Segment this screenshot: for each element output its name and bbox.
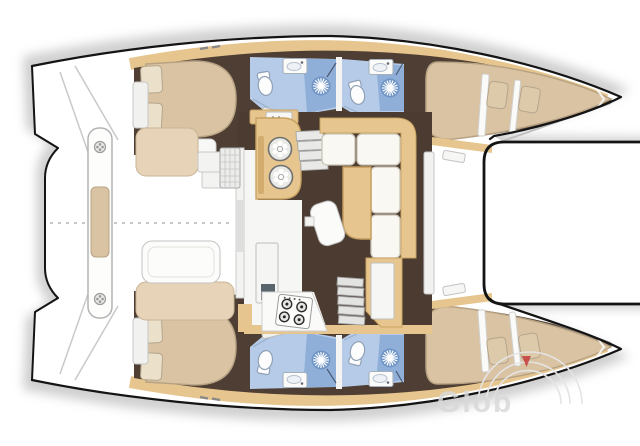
winch-icon xyxy=(95,294,106,305)
sofa-cushion xyxy=(371,167,400,213)
cockpit-seat-starboard xyxy=(136,282,234,320)
saloon-fwd-wall xyxy=(424,152,434,294)
grill-table xyxy=(220,148,240,188)
aft-bench-cushion xyxy=(91,187,109,257)
round-sink-icon xyxy=(269,138,292,161)
saloon-corner-cabinet xyxy=(238,304,252,332)
sofa-cushion xyxy=(357,134,400,165)
winch-icon xyxy=(95,142,106,153)
floor-hatch xyxy=(305,217,314,226)
watermark-text: Glob xyxy=(437,386,513,419)
chart-cabinet-door xyxy=(371,263,394,319)
sofa-cushion xyxy=(322,134,355,165)
stairs-starboard xyxy=(334,277,367,325)
saloon-table xyxy=(343,167,371,239)
stove xyxy=(275,294,313,329)
catamaran-floorplan: Glob xyxy=(0,0,640,446)
floorplan-stage: Glob xyxy=(0,0,640,446)
sliding-door xyxy=(236,200,243,252)
round-sink-icon xyxy=(270,166,293,189)
cockpit-seat-port xyxy=(136,128,198,176)
saloon xyxy=(236,110,434,334)
galley-counter-edge xyxy=(258,136,264,194)
sofa-cushion xyxy=(371,215,400,258)
